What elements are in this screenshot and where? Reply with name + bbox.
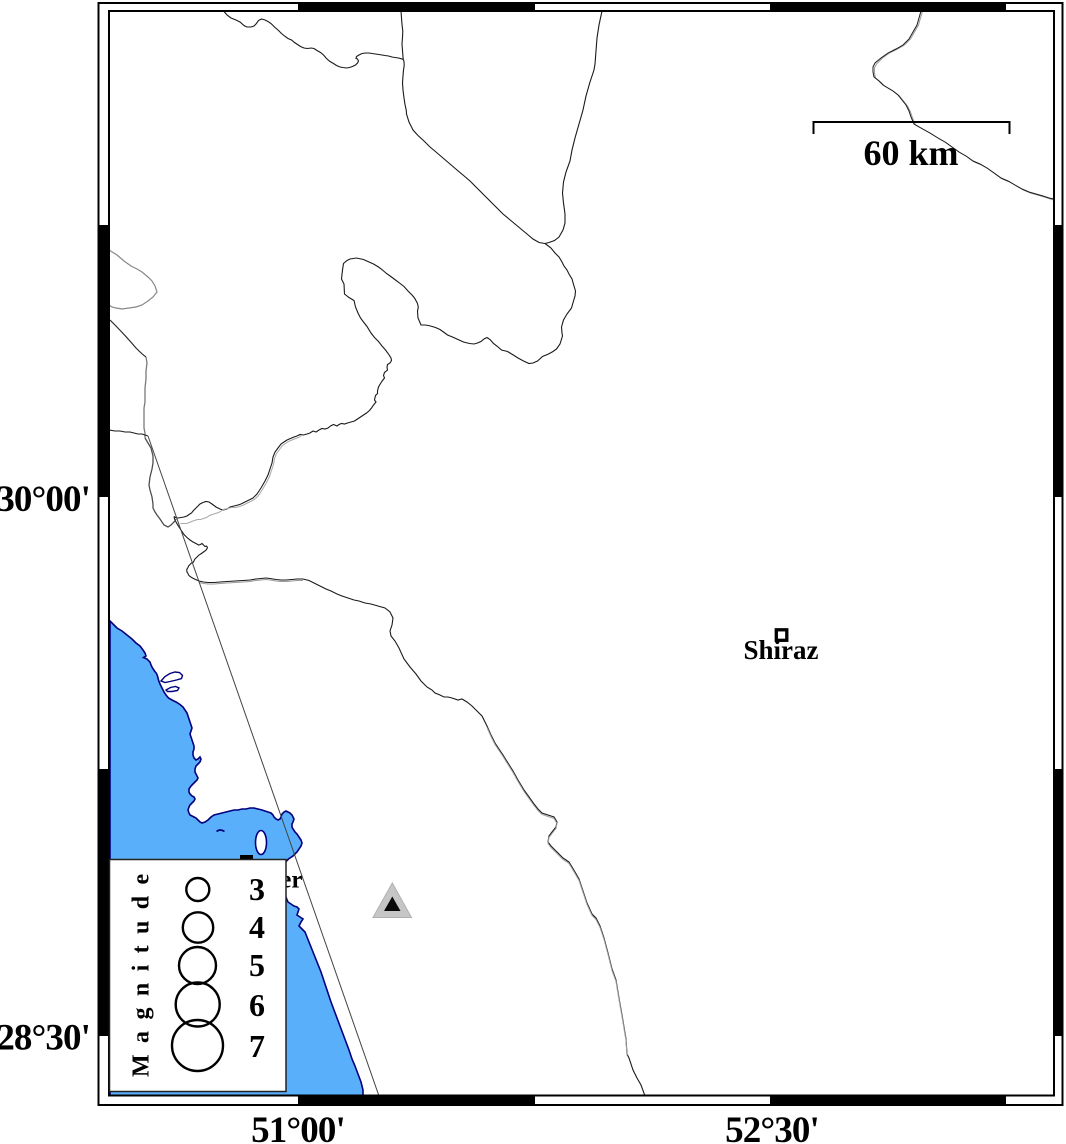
- svg-text:Shiraz: Shiraz: [743, 635, 818, 665]
- svg-text:52°30': 52°30': [725, 1110, 819, 1144]
- svg-text:4: 4: [249, 909, 265, 945]
- svg-text:6: 6: [249, 987, 265, 1023]
- svg-text:28°30': 28°30': [0, 1018, 90, 1059]
- svg-text:7: 7: [249, 1028, 265, 1064]
- svg-text:Magnitude: Magnitude: [129, 862, 155, 1077]
- svg-text:3: 3: [249, 871, 265, 907]
- svg-text:51°00': 51°00': [251, 1110, 345, 1144]
- svg-text:60 km: 60 km: [863, 133, 958, 173]
- svg-text:30°00': 30°00': [0, 479, 90, 520]
- svg-text:5: 5: [249, 947, 265, 983]
